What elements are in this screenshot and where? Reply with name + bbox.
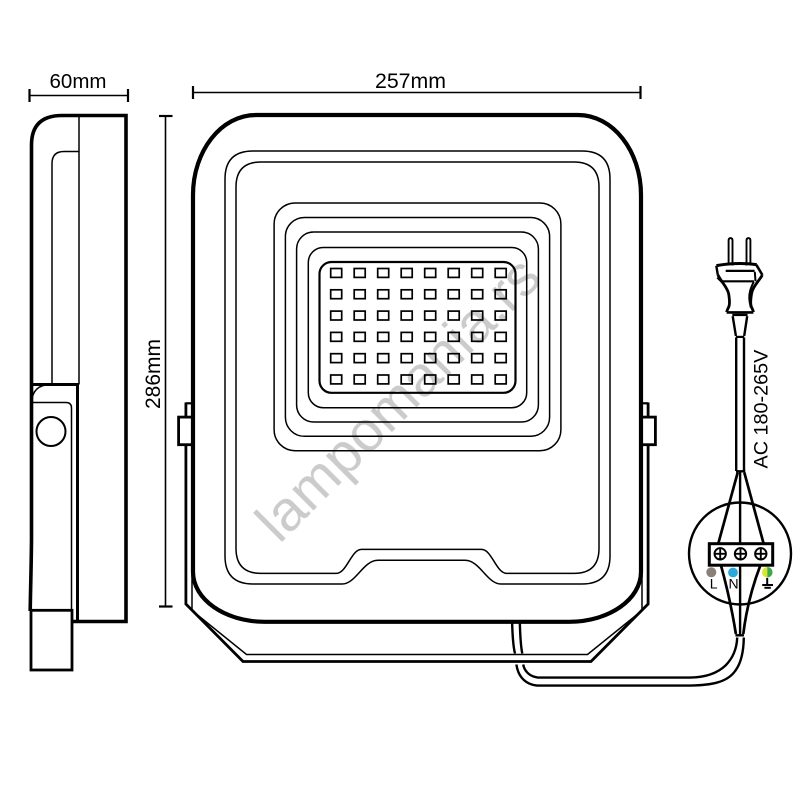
svg-text:L: L <box>710 576 718 592</box>
svg-text:257mm: 257mm <box>375 69 446 93</box>
svg-text:N: N <box>728 576 738 592</box>
svg-text:60mm: 60mm <box>50 70 107 93</box>
svg-text:AC 180-265V: AC 180-265V <box>751 349 773 469</box>
svg-text:286mm: 286mm <box>142 339 165 409</box>
